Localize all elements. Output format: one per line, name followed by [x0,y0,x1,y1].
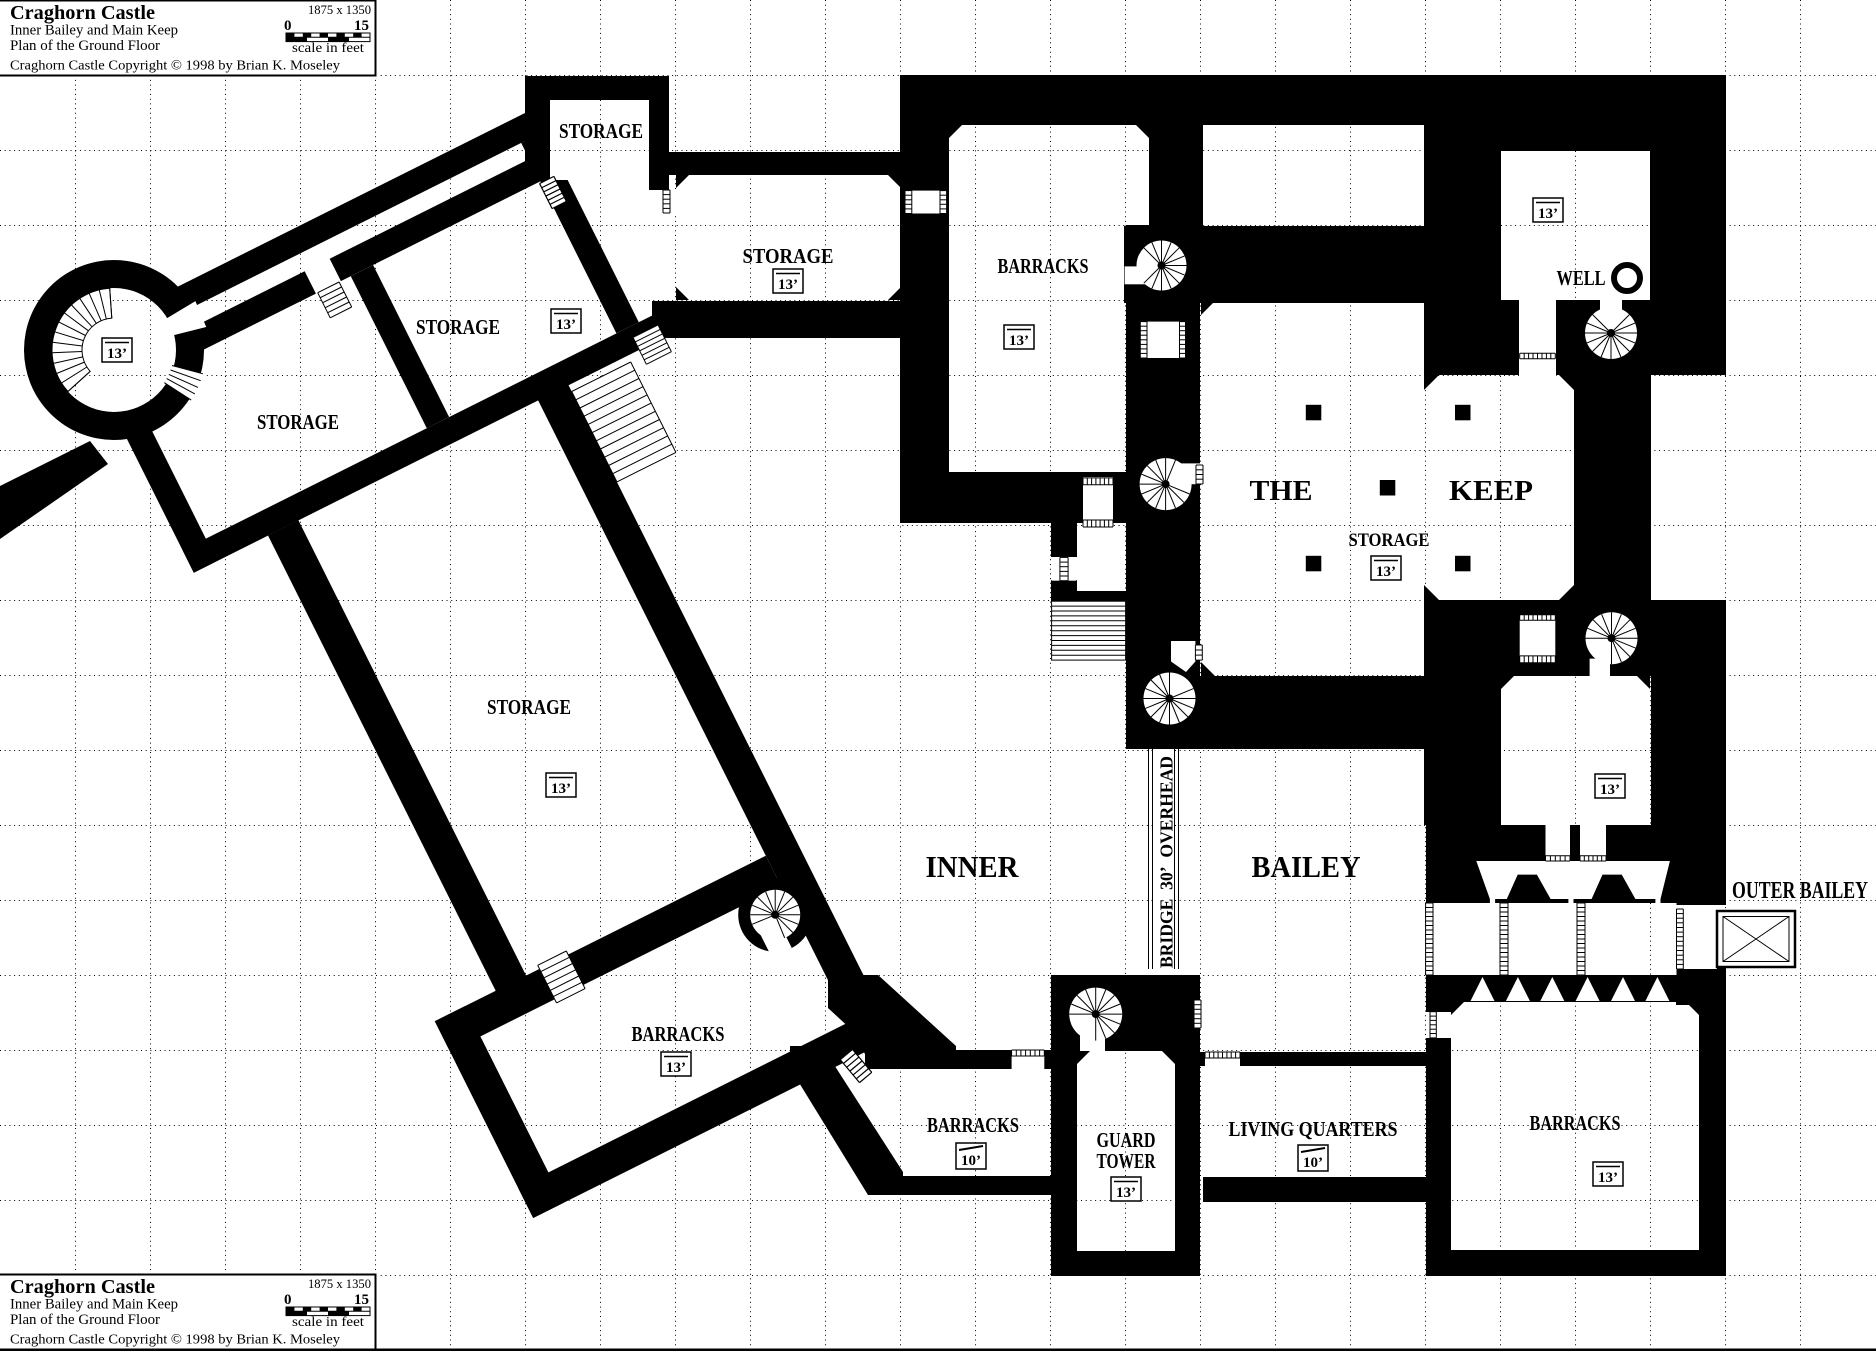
svg-text:13’: 13’ [1538,206,1558,222]
svg-text:WELL: WELL [1557,266,1606,290]
svg-text:BAILEY: BAILEY [1252,849,1361,884]
svg-text:THE: THE [1250,476,1313,507]
svg-text:15: 15 [354,18,369,34]
svg-text:15: 15 [354,1292,369,1308]
svg-text:INNER: INNER [926,849,1020,884]
svg-text:scale in feet: scale in feet [292,1315,364,1330]
svg-text:1875 x 1350: 1875 x 1350 [308,2,371,17]
svg-text:1875 x 1350: 1875 x 1350 [308,1276,371,1291]
svg-text:Craghorn Castle Copyright © 19: Craghorn Castle Copyright © 1998 by Bria… [10,1333,340,1348]
svg-text:0: 0 [284,1292,292,1308]
svg-text:13’: 13’ [1598,1170,1618,1186]
svg-text:13’: 13’ [551,781,571,797]
svg-text:13’: 13’ [1116,1185,1136,1201]
svg-text:BARRACKS: BARRACKS [632,1022,725,1046]
svg-text:STORAGE: STORAGE [559,119,643,143]
svg-text:Craghorn Castle: Craghorn Castle [10,2,155,24]
svg-text:Inner Bailey and Main Keep: Inner Bailey and Main Keep [10,1297,178,1313]
svg-text:Craghorn Castle Copyright © 19: Craghorn Castle Copyright © 1998 by Bria… [10,59,340,74]
svg-text:BRIDGE 30’ OVERHEAD: BRIDGE 30’ OVERHEAD [1157,756,1177,968]
svg-text:13’: 13’ [1600,782,1620,798]
svg-text:OUTER BAILEY: OUTER BAILEY [1732,878,1868,904]
svg-text:Plan of the Ground Floor: Plan of the Ground Floor [10,38,160,54]
svg-text:TOWER: TOWER [1097,1149,1157,1173]
svg-text:Inner Bailey and Main Keep: Inner Bailey and Main Keep [10,23,178,39]
svg-text:Craghorn Castle: Craghorn Castle [10,1276,155,1298]
svg-text:13’: 13’ [556,317,576,333]
svg-text:LIVING QUARTERS: LIVING QUARTERS [1229,1117,1398,1141]
svg-text:STORAGE: STORAGE [743,244,834,268]
svg-text:STORAGE: STORAGE [257,410,339,434]
svg-text:13’: 13’ [107,346,127,362]
svg-text:BARRACKS: BARRACKS [1530,1111,1621,1135]
svg-text:STORAGE: STORAGE [487,695,571,719]
svg-text:0: 0 [284,18,292,34]
svg-text:Plan of the Ground Floor: Plan of the Ground Floor [10,1312,160,1328]
svg-text:STORAGE: STORAGE [416,315,500,339]
svg-text:STORAGE: STORAGE [1349,530,1430,551]
svg-text:KEEP: KEEP [1449,476,1533,507]
svg-text:scale in feet: scale in feet [292,41,364,56]
svg-text:10’: 10’ [1303,1155,1323,1171]
svg-text:13’: 13’ [666,1060,686,1076]
svg-text:13’: 13’ [1009,333,1029,349]
svg-text:10’: 10’ [961,1153,981,1169]
svg-text:13’: 13’ [778,277,798,293]
svg-text:BARRACKS: BARRACKS [998,254,1089,278]
svg-text:13’: 13’ [1376,564,1396,580]
svg-text:BARRACKS: BARRACKS [927,1113,1019,1137]
